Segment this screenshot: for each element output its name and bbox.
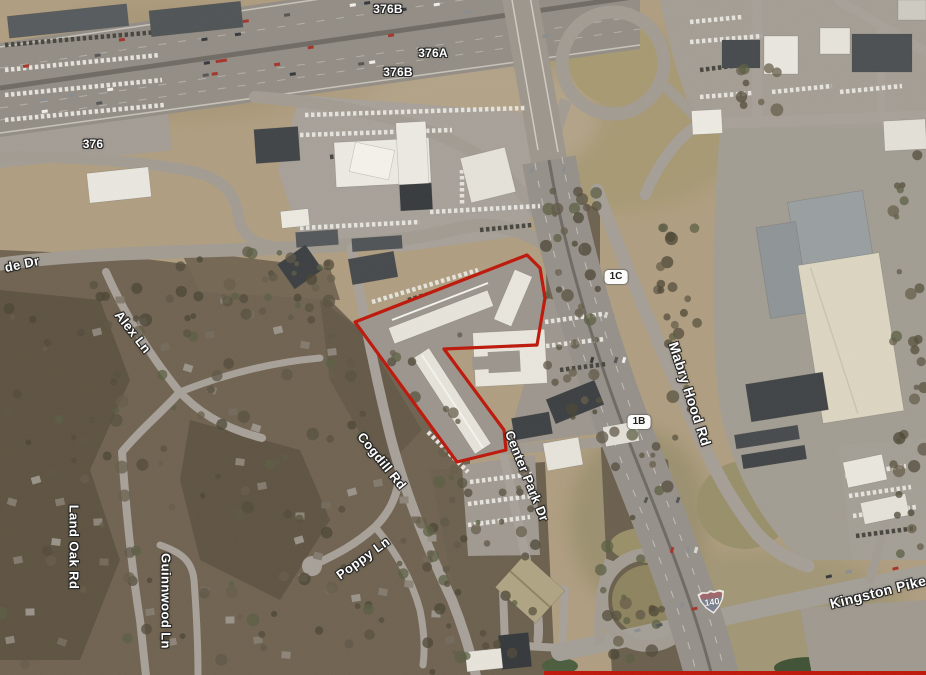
bottom-border-strip	[544, 671, 926, 675]
aerial-imagery	[0, 0, 926, 675]
aerial-map: 376B 376A 376B 376 de Dr Alex Ln Land Oa…	[0, 0, 926, 675]
